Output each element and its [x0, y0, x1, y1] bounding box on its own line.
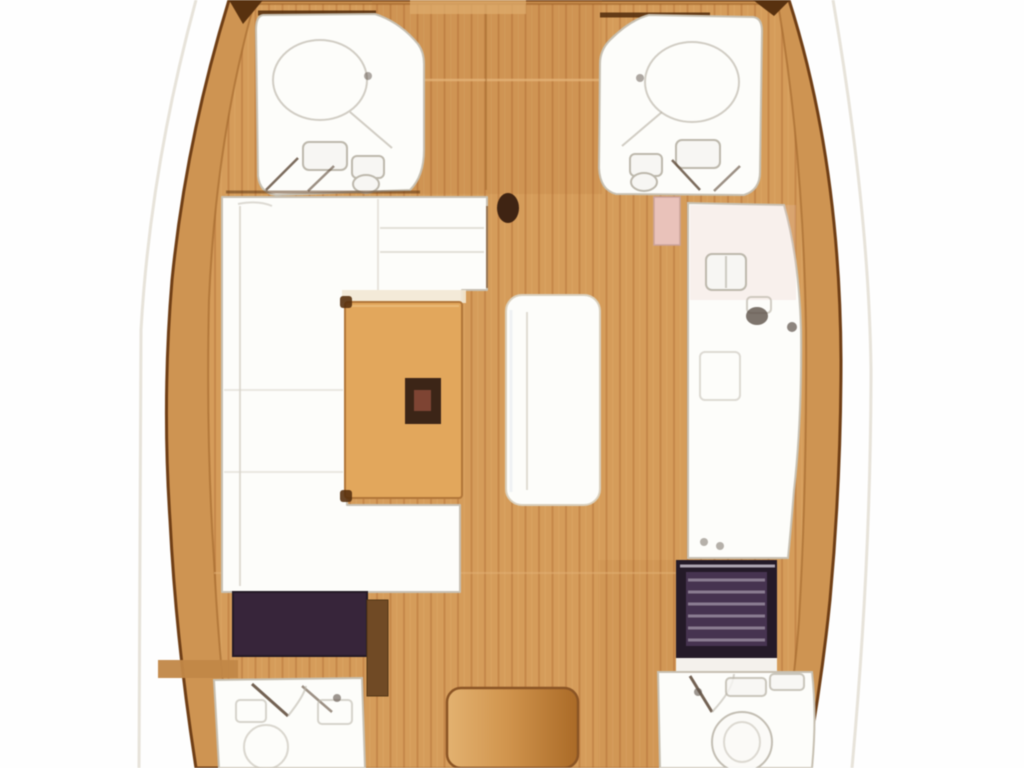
forward-head-port: [256, 14, 424, 195]
aft-deck-band: [158, 660, 238, 678]
faucet-icon: [746, 307, 768, 325]
yacht-floor-plan: [0, 0, 1024, 768]
floor-plan-canvas: [0, 0, 1024, 768]
sink-icon: [726, 678, 766, 696]
toilet-bowl-icon: [712, 712, 772, 768]
salon-table-top: [345, 302, 462, 498]
forward-berth-edge: [410, 0, 526, 14]
aft-head-starboard: [658, 672, 815, 768]
salon-bench-body: [506, 295, 600, 505]
salon-bench: [506, 295, 600, 505]
table-inset-center: [414, 390, 431, 411]
mast-icon: [497, 193, 519, 223]
aft-head-port: [214, 678, 365, 768]
companionway-steps: [447, 688, 578, 768]
toilet-bowl-icon: [631, 173, 657, 191]
galley-door-panel: [654, 197, 680, 245]
chart-table-seat: [367, 600, 388, 696]
stove: [676, 560, 777, 672]
salon-table: [340, 296, 462, 502]
handle-dot: [333, 694, 341, 702]
table-corner-post: [340, 490, 352, 502]
sink-icon: [676, 140, 720, 168]
forward-head-starboard: [599, 15, 762, 195]
burner-knob: [700, 538, 708, 546]
stove-body: [686, 572, 767, 646]
drain-icon: [364, 72, 372, 80]
table-corner-post: [340, 296, 352, 308]
sink-icon: [303, 142, 347, 170]
handle-dot: [694, 688, 702, 696]
toilet-bowl-icon: [353, 175, 379, 193]
locker-icon: [770, 674, 804, 690]
chart-table-top: [233, 592, 367, 656]
drain-icon: [636, 74, 644, 82]
handle-dot: [787, 322, 797, 332]
stove-counter-strip: [676, 658, 777, 672]
burner-knob: [716, 542, 724, 550]
